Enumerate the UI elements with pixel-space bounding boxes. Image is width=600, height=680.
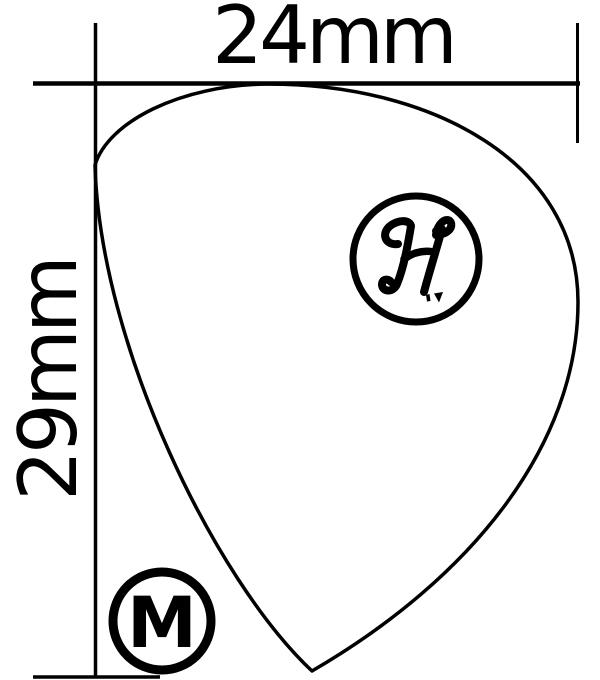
size-badge-letter: M	[127, 582, 197, 664]
width-dimension-label: 24mm	[193, 0, 473, 76]
drawing-strokes: M	[33, 23, 580, 678]
size-badge: M	[113, 572, 211, 670]
height-dimension-label: 29mm	[9, 259, 89, 501]
pick-dimension-drawing: M 24mm 29mm	[0, 0, 600, 680]
